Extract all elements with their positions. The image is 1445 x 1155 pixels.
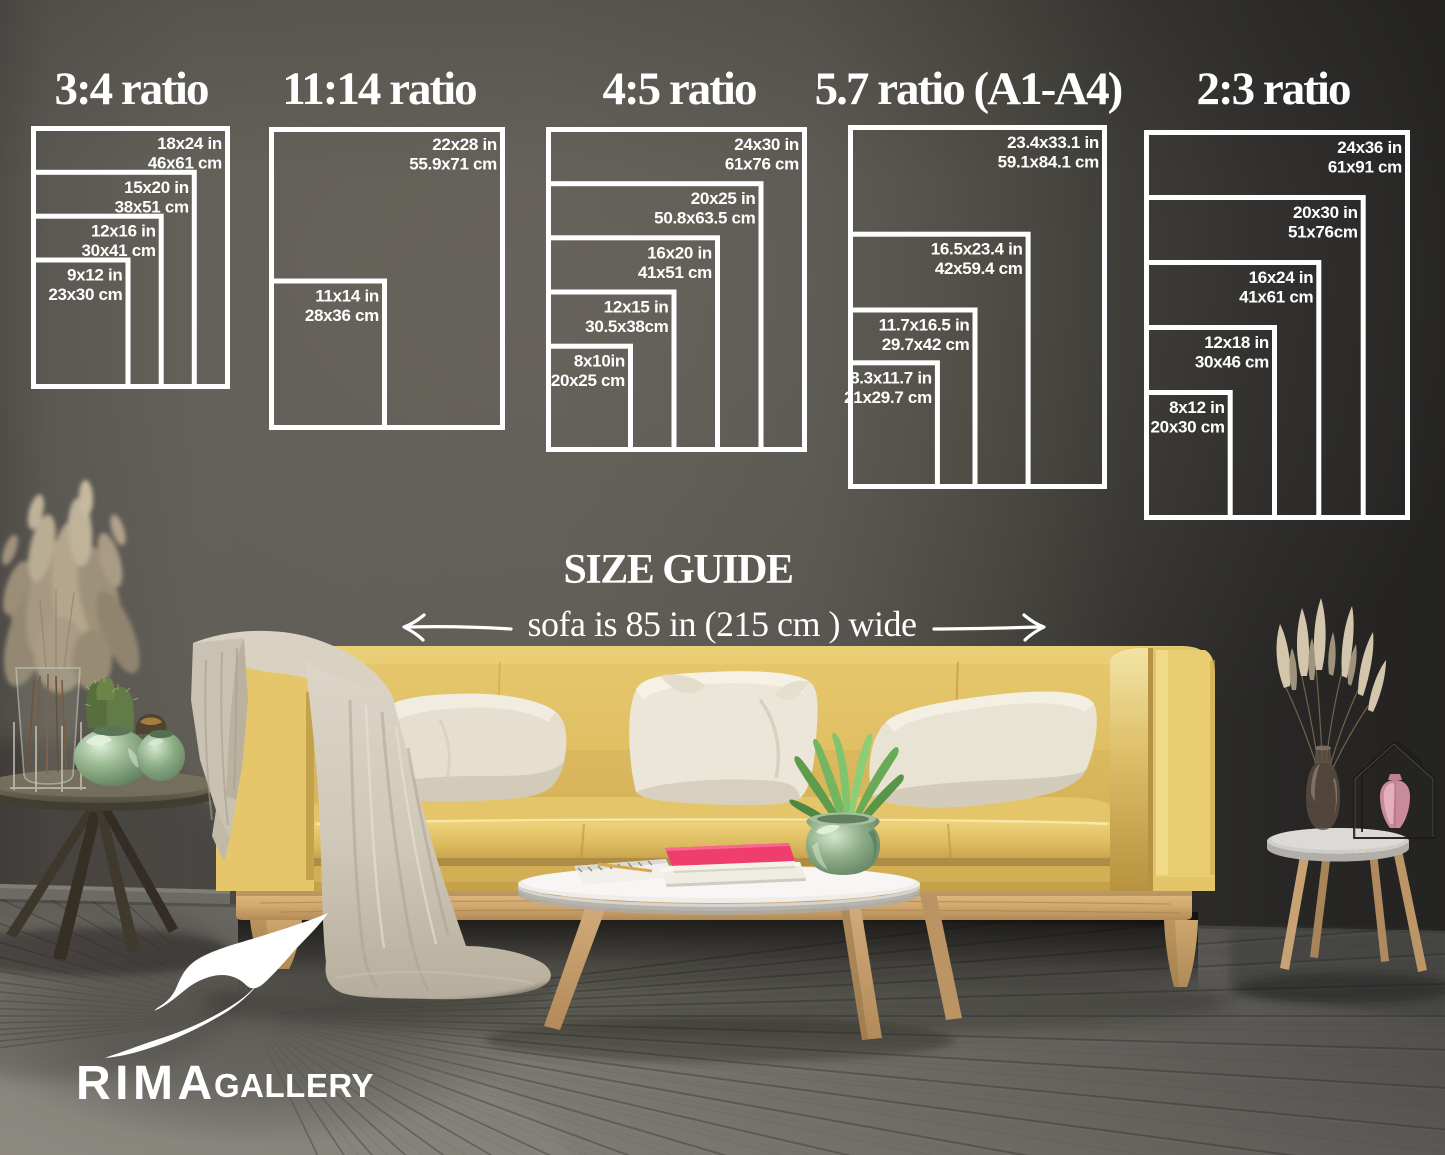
svg-text:55.9x71 cm: 55.9x71 cm xyxy=(409,155,497,174)
svg-text:8.3x11.7 in: 8.3x11.7 in xyxy=(850,368,932,387)
svg-text:RIMA: RIMA xyxy=(76,1057,217,1110)
svg-text:30x41 cm: 30x41 cm xyxy=(82,241,156,260)
svg-text:3:4 ratio: 3:4 ratio xyxy=(55,63,208,115)
svg-text:21x29.7 cm: 21x29.7 cm xyxy=(844,388,932,407)
svg-text:11x14 in: 11x14 in xyxy=(315,287,379,306)
svg-text:28x36 cm: 28x36 cm xyxy=(305,306,379,325)
svg-text:sofa is 85 in (215 cm ) wide: sofa is 85 in (215 cm ) wide xyxy=(528,604,917,644)
svg-text:61x76 cm: 61x76 cm xyxy=(725,155,799,174)
svg-text:20x25 cm: 20x25 cm xyxy=(551,371,625,390)
svg-text:11:14 ratio: 11:14 ratio xyxy=(282,63,476,115)
svg-text:51x76cm: 51x76cm xyxy=(1288,223,1358,242)
svg-text:30x46 cm: 30x46 cm xyxy=(1195,353,1269,372)
svg-text:16x24 in: 16x24 in xyxy=(1249,268,1314,287)
svg-text:23x30 cm: 23x30 cm xyxy=(48,285,122,304)
svg-text:29.7x42 cm: 29.7x42 cm xyxy=(882,335,970,354)
svg-text:16.5x23.4 in: 16.5x23.4 in xyxy=(931,240,1023,259)
svg-text:12x18 in: 12x18 in xyxy=(1204,333,1269,352)
svg-text:SIZE GUIDE: SIZE GUIDE xyxy=(564,547,793,593)
svg-text:18x24 in: 18x24 in xyxy=(157,134,222,153)
svg-text:5.7 ratio (A1-A4): 5.7 ratio (A1-A4) xyxy=(815,63,1122,115)
svg-text:4:5 ratio: 4:5 ratio xyxy=(603,63,756,115)
svg-text:12x15 in: 12x15 in xyxy=(604,298,669,317)
svg-text:24x36 in: 24x36 in xyxy=(1337,138,1402,157)
svg-text:16x20 in: 16x20 in xyxy=(647,243,712,262)
svg-text:8x10in: 8x10in xyxy=(574,352,625,371)
svg-text:46x61 cm: 46x61 cm xyxy=(148,154,222,173)
svg-text:38x51 cm: 38x51 cm xyxy=(115,197,189,216)
svg-text:11.7x16.5 in: 11.7x16.5 in xyxy=(879,316,970,335)
svg-text:15x20 in: 15x20 in xyxy=(124,178,189,197)
svg-text:20x25 in: 20x25 in xyxy=(691,189,756,208)
svg-text:41x61 cm: 41x61 cm xyxy=(1239,288,1313,307)
svg-text:20x30 in: 20x30 in xyxy=(1293,203,1358,222)
svg-text:42x59.4 cm: 42x59.4 cm xyxy=(935,259,1023,278)
svg-text:2:3 ratio: 2:3 ratio xyxy=(1197,63,1350,115)
svg-text:12x16 in: 12x16 in xyxy=(91,222,156,241)
svg-text:GALLERY: GALLERY xyxy=(214,1067,374,1104)
svg-text:8x12 in: 8x12 in xyxy=(1169,398,1225,417)
svg-text:30.5x38cm: 30.5x38cm xyxy=(585,317,669,336)
svg-text:20x30 cm: 20x30 cm xyxy=(1151,418,1225,437)
svg-text:23.4x33.1 in: 23.4x33.1 in xyxy=(1007,133,1099,152)
svg-text:50.8x63.5 cm: 50.8x63.5 cm xyxy=(654,209,756,228)
svg-text:41x51 cm: 41x51 cm xyxy=(638,263,712,282)
svg-text:22x28 in: 22x28 in xyxy=(432,135,497,154)
svg-text:9x12 in: 9x12 in xyxy=(67,266,123,285)
svg-text:59.1x84.1 cm: 59.1x84.1 cm xyxy=(998,153,1100,172)
svg-text:61x91 cm: 61x91 cm xyxy=(1328,158,1402,177)
svg-text:24x30 in: 24x30 in xyxy=(734,135,799,154)
